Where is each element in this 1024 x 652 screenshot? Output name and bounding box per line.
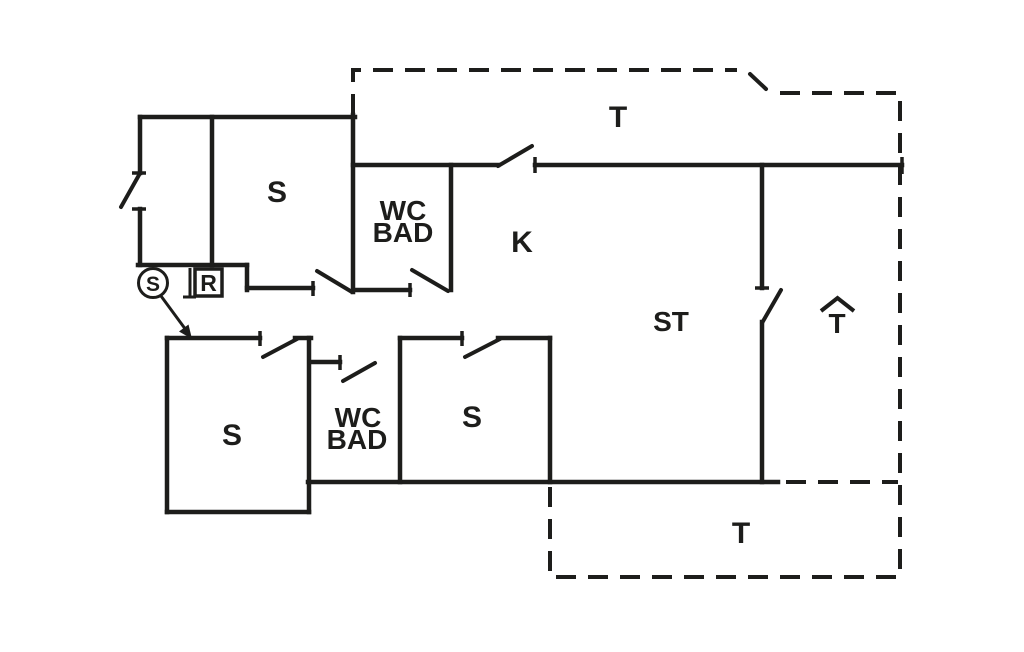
label-kitchen: K (511, 226, 533, 259)
floor-plan-drawing: S R T S WC BAD K ST T S WC BAD S T (0, 0, 1024, 652)
bath-lower-door-leaf (343, 363, 375, 381)
label-bath-lower-line2: BAD (327, 424, 388, 455)
label-bedroom-lower-right: S (462, 401, 482, 434)
bedroom-lower-right-door-leaf (465, 339, 500, 357)
floor-plan-canvas: S R T S WC BAD K ST T S WC BAD S T (0, 0, 1024, 652)
label-bedroom-upper: S (267, 176, 287, 209)
kitchen-terrace-door-leaf (498, 146, 532, 166)
terrace-top-left-corner-line (353, 70, 737, 114)
bedroom-upper-door-leaf (317, 271, 352, 292)
bath-upper-door-leaf (412, 270, 448, 291)
label-terrace-annex: T (828, 308, 845, 339)
label-bedroom-lower-left: S (222, 419, 242, 452)
entry-door-leaf (121, 175, 139, 207)
terrace-outline-top (353, 70, 900, 577)
east-wall (755, 165, 781, 482)
terrace-top-diagonal-dash (750, 74, 766, 89)
bedroom-lower-left-door-leaf (263, 339, 297, 357)
circle-symbol-letter: S (146, 273, 160, 296)
label-bath-upper-line2: BAD (373, 217, 434, 248)
label-living-room: ST (653, 306, 689, 337)
north-wall (353, 146, 902, 174)
pointer-arrow-line (161, 296, 186, 330)
label-terrace-top: T (609, 101, 627, 134)
box-symbol-letter: R (200, 270, 217, 296)
annex-door-leaf (762, 290, 781, 323)
label-terrace-bottom: T (732, 517, 750, 550)
